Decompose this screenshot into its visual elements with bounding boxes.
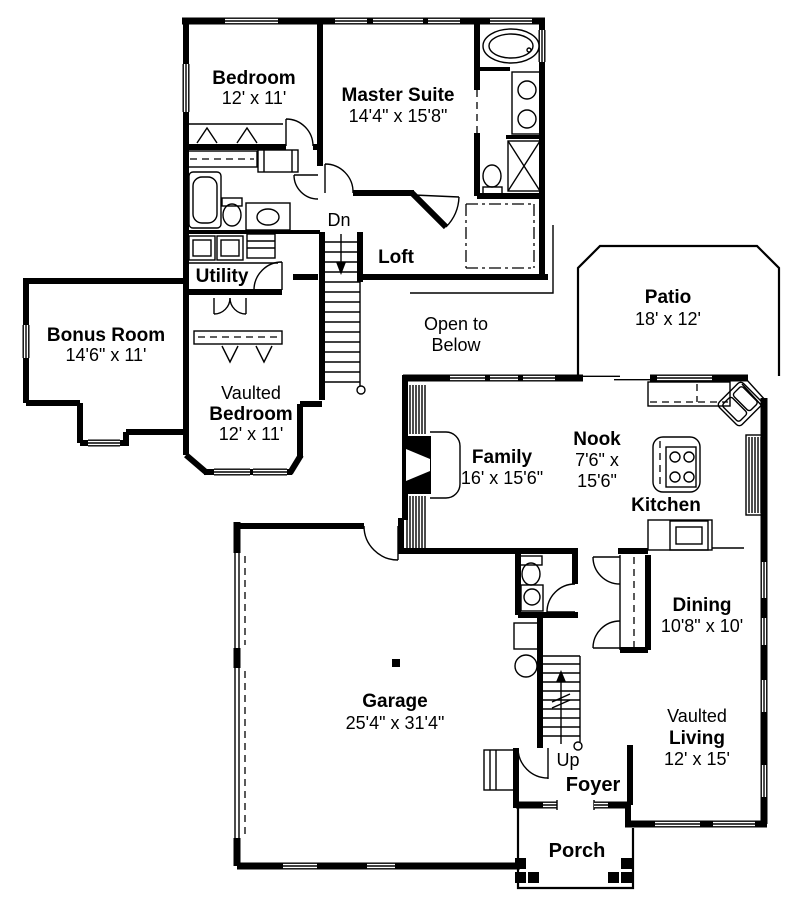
- label-bedroom-dims: 12' x 11': [222, 88, 287, 108]
- label-bonus-name: Bonus Room: [47, 325, 165, 346]
- label-bedroom-name: Bedroom: [212, 68, 295, 89]
- label-open-below-2: Below: [431, 335, 481, 355]
- label-utility: Utility: [196, 266, 249, 287]
- label-family-name: Family: [472, 447, 533, 468]
- label-porch: Porch: [549, 840, 606, 862]
- fireplace: [403, 385, 460, 548]
- landing-closet: [194, 331, 282, 362]
- garage-entry-landing: [484, 750, 516, 790]
- label-living-name: Living: [669, 728, 725, 749]
- label-master-dims: 14'4" x 15'8": [349, 106, 448, 126]
- label-kitchen: Kitchen: [631, 495, 701, 516]
- furnace-water-heater: [514, 623, 538, 677]
- label-family-dims: 16' x 15'6": [461, 468, 543, 488]
- label-vbed-name: Bedroom: [209, 404, 292, 425]
- label-vbed-dims: 12' x 11': [219, 424, 284, 444]
- master-closet-rods: [466, 204, 534, 268]
- label-dining-dims: 10'8" x 10': [661, 616, 743, 636]
- upper-floor-plan: Bedroom 12' x 11' Master Suite 14'4" x 1…: [23, 18, 554, 476]
- label-dn: Dn: [327, 210, 350, 230]
- label-nook-name: Nook: [573, 429, 621, 450]
- open-to-below-edge: [410, 225, 553, 293]
- hall-bath-fixtures: [189, 172, 290, 230]
- label-nook-dims-1: 7'6" x: [575, 450, 619, 470]
- pantry: [593, 555, 634, 650]
- label-garage-dims: 25'4" x 31'4": [346, 713, 445, 733]
- label-patio-name: Patio: [645, 287, 691, 308]
- label-up: Up: [556, 750, 579, 770]
- utility-appliances: [188, 234, 278, 263]
- label-loft: Loft: [378, 247, 415, 268]
- label-nook-dims-2: 15'6": [577, 471, 617, 491]
- label-bonus-dims: 14'6" x 11': [66, 345, 147, 365]
- corner-sink: [717, 381, 764, 428]
- stairs-up: [542, 656, 582, 750]
- main-floor-plan: Patio 18' x 12' Family 16' x 15'6" Nook …: [233, 246, 779, 888]
- kitchen-fixtures: [648, 381, 766, 550]
- garage-post: [392, 659, 400, 667]
- label-garage-name: Garage: [362, 691, 427, 712]
- floor-plan-page: Bedroom 12' x 11' Master Suite 14'4" x 1…: [0, 0, 800, 908]
- label-dining-name: Dining: [672, 595, 731, 616]
- label-master-name: Master Suite: [342, 85, 455, 106]
- master-bath-fixtures: [474, 29, 543, 195]
- label-foyer: Foyer: [566, 774, 621, 796]
- label-living-dims: 12' x 15': [664, 749, 730, 769]
- label-open-below-1: Open to: [424, 314, 488, 334]
- label-living-prefix: Vaulted: [667, 706, 727, 726]
- floor-plan-drawing: Bedroom 12' x 11' Master Suite 14'4" x 1…: [0, 0, 800, 908]
- powder-room-fixtures: [520, 556, 575, 612]
- label-patio-dims: 18' x 12': [635, 309, 701, 329]
- label-vbed-prefix: Vaulted: [221, 383, 281, 403]
